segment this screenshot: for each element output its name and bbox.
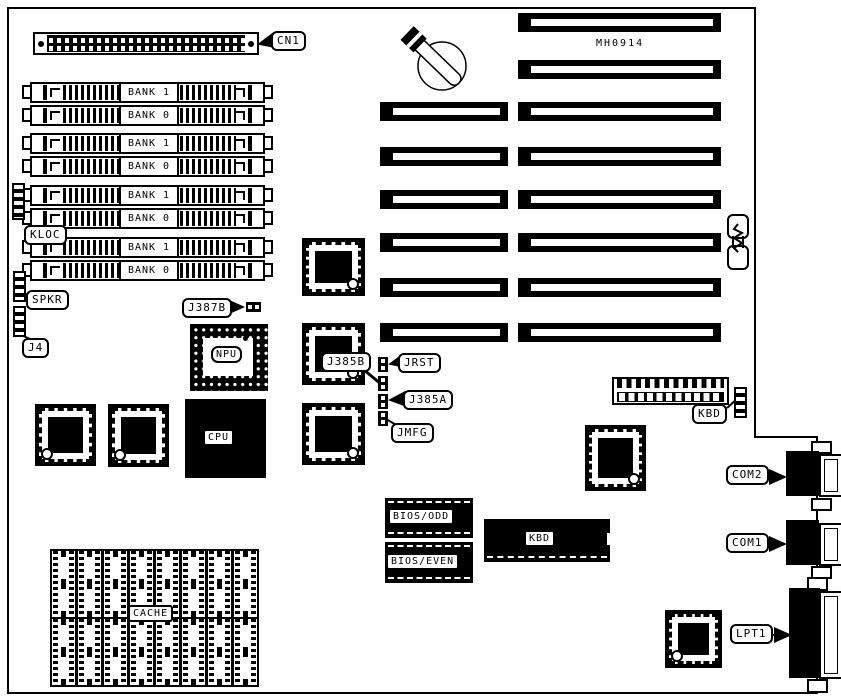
bank-label: BANK 1 [119, 185, 179, 206]
simm-socket-row: BANK 1 [30, 133, 265, 154]
callout-spkr: SPKR [26, 290, 69, 310]
isa-slot [518, 102, 721, 121]
isa-slot [518, 147, 721, 166]
keyboard-controller-chip: KBD [484, 519, 610, 562]
kloc-header [12, 183, 25, 220]
bracket-tab [807, 679, 828, 693]
bank-label: BANK 1 [119, 82, 179, 103]
isa-slot-extension [380, 190, 508, 209]
cache-socket [206, 617, 233, 687]
motherboard-diagram: BANK 1 BANK 0 BANK 1 BANK 0 BANK 1 BANK … [0, 0, 841, 700]
callout-j387b: J387B [182, 298, 232, 318]
npu-chip-label: NPU [211, 346, 242, 363]
power-connector-pins [617, 379, 724, 388]
spkr-header [13, 271, 26, 302]
bios-odd-label: BIOS/ODD [388, 508, 454, 525]
bios-even-chip: BIOS/EVEN [385, 542, 473, 583]
bank-label: BANK 1 [119, 133, 179, 154]
callout-kloc: KLOC [24, 225, 67, 245]
cache-socket [50, 617, 77, 687]
com2-connector [786, 451, 819, 496]
cpu-chip-label: CPU [203, 429, 234, 446]
com1-connector [786, 520, 819, 565]
isa-slot [518, 323, 721, 342]
isa-slot-extension [380, 233, 508, 252]
cpu-chip: CPU [185, 399, 266, 478]
qfp-chip [665, 610, 722, 668]
cache-socket [180, 617, 207, 687]
isa-slot-extension [380, 147, 508, 166]
simm-socket-row: BANK 1 [30, 185, 265, 206]
callout-kbd: KBD [692, 404, 727, 424]
j385a-jumper [378, 394, 388, 409]
com1-db9-shell [819, 523, 841, 566]
bracket-tab [811, 498, 832, 511]
isa-slot-extension [380, 323, 508, 342]
callout-jmfg: JMFG [391, 423, 434, 443]
isa-slot-extension [380, 102, 508, 121]
j387b-jumper [246, 302, 261, 312]
callout-com2: COM2 [726, 465, 769, 485]
bank-label: BANK 0 [119, 208, 179, 229]
cache-socket [206, 549, 233, 619]
qfp-chip [302, 238, 365, 296]
cache-socket [232, 617, 259, 687]
callout-jrst: JRST [398, 353, 441, 373]
lpt1-connector [789, 588, 820, 678]
simm-socket-row: BANK 0 [30, 105, 265, 126]
bios-even-label: BIOS/EVEN [386, 553, 459, 570]
bank-label: BANK 1 [119, 237, 179, 258]
cache-socket [180, 549, 207, 619]
callout-lpt1: LPT1 [730, 624, 773, 644]
cache-label: CACHE [128, 605, 173, 622]
callout-j4: J4 [22, 338, 49, 358]
bank-label: BANK 0 [119, 156, 179, 177]
jrst-jumper [378, 357, 388, 372]
kbd-header [734, 387, 747, 418]
bios-odd-chip: BIOS/ODD [385, 498, 473, 538]
cn1-pin-field [47, 35, 245, 52]
qfp-chip [302, 403, 365, 465]
simm-socket-row: BANK 1 [30, 82, 265, 103]
isa-slot-extension [380, 278, 508, 297]
cache-socket [154, 617, 181, 687]
jmfg-jumper [378, 411, 388, 426]
power-connector [612, 377, 729, 405]
cache-socket [232, 549, 259, 619]
j385b-jumper [378, 376, 388, 391]
npu-socket: NPU [190, 324, 268, 391]
callout-j385b: J385B [321, 352, 371, 372]
simm-socket-row: BANK 0 [30, 156, 265, 177]
board-id-text: MH0914 [596, 38, 644, 49]
simm-socket-row: BANK 0 [30, 260, 265, 281]
bank-label: BANK 0 [119, 105, 179, 126]
cache-socket [50, 549, 77, 619]
cn1-mount-pin [38, 41, 44, 47]
cache-socket [76, 617, 103, 687]
com2-db9-shell [819, 454, 841, 497]
cn1-connector [33, 32, 259, 55]
kbd-chip-label: KBD [524, 530, 555, 547]
qfp-chip [585, 425, 646, 491]
callout-cn1: CN1 [271, 31, 306, 51]
j4-header [13, 306, 26, 337]
cache-socket [76, 549, 103, 619]
cache-socket [102, 549, 129, 619]
callout-j385a: J385A [403, 390, 453, 410]
callout-com1: COM1 [726, 533, 769, 553]
cache-socket [128, 617, 155, 687]
isa-slot [518, 278, 721, 297]
isa-slot [518, 13, 721, 32]
power-connector-sockets [617, 392, 724, 402]
qfp-chip [108, 404, 169, 467]
bank-label: BANK 0 [119, 260, 179, 281]
cache-socket [102, 617, 129, 687]
isa-slot [518, 190, 721, 209]
lpt1-db25-shell [819, 591, 841, 679]
cn1-mount-pin [248, 41, 254, 47]
qfp-chip [35, 404, 96, 466]
isa-slot [518, 60, 721, 79]
pin1-dot [243, 336, 248, 341]
isa-slot [518, 233, 721, 252]
